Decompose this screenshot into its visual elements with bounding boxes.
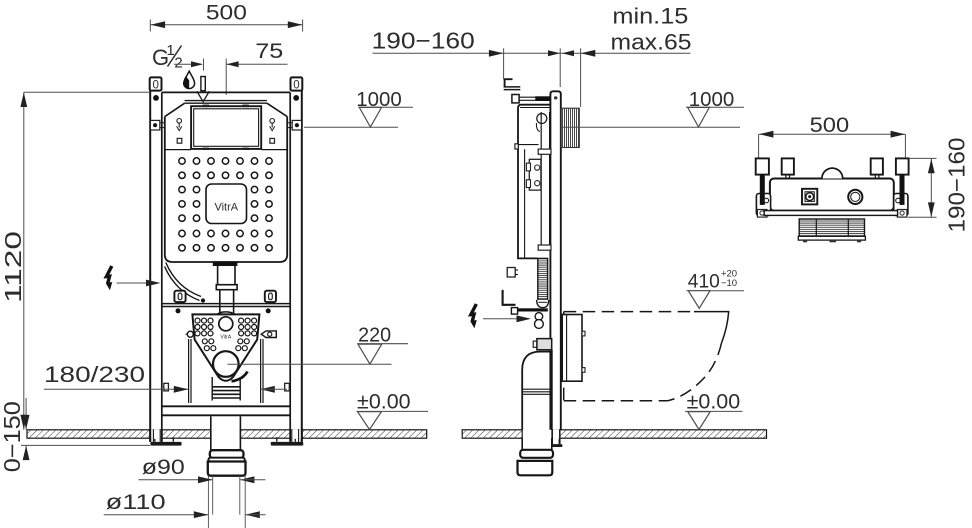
svg-text:1120: 1120 — [0, 231, 26, 303]
svg-text:2: 2 — [174, 55, 182, 72]
svg-text:VitrA: VitrA — [214, 202, 238, 214]
svg-text:ø90: ø90 — [142, 456, 185, 479]
svg-text:max.65: max.65 — [611, 29, 692, 54]
svg-text:220: 220 — [358, 324, 391, 347]
svg-text:±0.00: ±0.00 — [687, 390, 741, 413]
svg-text:VitrA: VitrA — [220, 334, 231, 340]
svg-text:500: 500 — [206, 1, 247, 25]
svg-text:0: 0 — [152, 80, 158, 92]
svg-text:0−150: 0−150 — [0, 401, 25, 472]
svg-text:ø110: ø110 — [106, 491, 166, 514]
svg-text:410: 410 — [688, 270, 720, 292]
svg-text:75: 75 — [255, 40, 283, 63]
svg-text:500: 500 — [810, 113, 850, 137]
svg-text:min.15: min.15 — [612, 4, 688, 29]
svg-text:190−160: 190−160 — [372, 27, 475, 53]
svg-text:0: 0 — [293, 80, 299, 92]
svg-text:190−160: 190−160 — [944, 138, 970, 233]
svg-text:−10: −10 — [721, 278, 737, 289]
svg-text:±0.00: ±0.00 — [357, 390, 411, 413]
svg-text:180/230: 180/230 — [44, 362, 145, 387]
